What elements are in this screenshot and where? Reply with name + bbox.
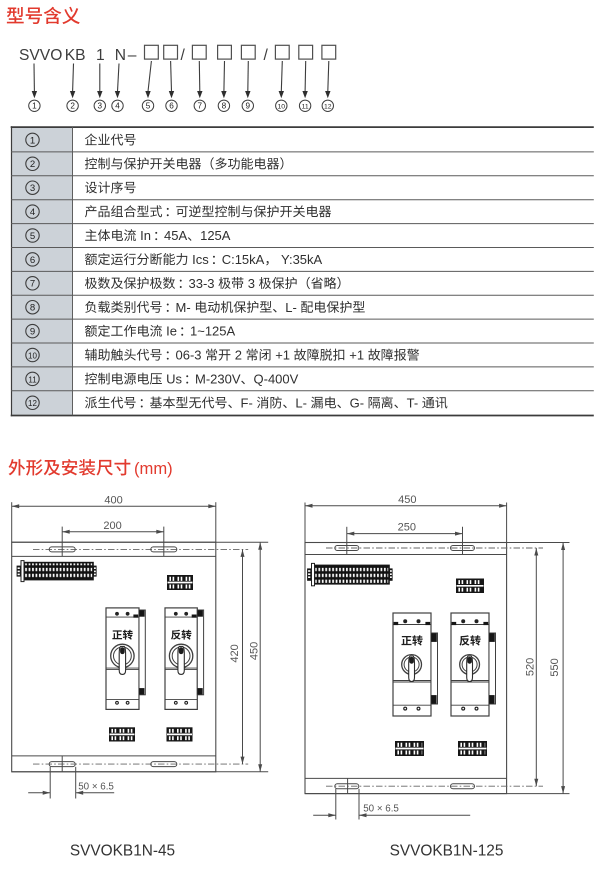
svg-text:N: N xyxy=(115,47,126,64)
svg-text:7: 7 xyxy=(198,102,203,111)
svg-text:/: / xyxy=(181,47,186,64)
svg-text:+1: +1 xyxy=(275,348,290,363)
svg-text:520: 520 xyxy=(525,658,537,676)
svg-text:L-: L- xyxy=(285,300,297,315)
svg-text:1: 1 xyxy=(30,135,35,146)
svg-text:C:15kA: C:15kA xyxy=(222,252,265,267)
svg-text:Ics: Ics xyxy=(192,252,209,267)
svg-text:200: 200 xyxy=(103,520,121,532)
svg-text:2: 2 xyxy=(30,159,35,170)
svg-text:2: 2 xyxy=(235,348,242,363)
svg-text:SVVOKB1N-125: SVVOKB1N-125 xyxy=(390,842,504,859)
svg-text:125A: 125A xyxy=(200,228,231,243)
svg-text:420: 420 xyxy=(229,644,241,662)
svg-text:33-3: 33-3 xyxy=(189,276,215,291)
svg-text:3: 3 xyxy=(98,102,103,111)
svg-text:4: 4 xyxy=(115,102,120,111)
svg-text:06-3: 06-3 xyxy=(176,348,202,363)
svg-text:Y:35kA: Y:35kA xyxy=(281,252,323,267)
svg-text:50 × 6.5: 50 × 6.5 xyxy=(78,781,114,792)
svg-text:45A: 45A xyxy=(164,228,187,243)
svg-text:T-: T- xyxy=(407,395,419,410)
svg-text:5: 5 xyxy=(146,102,151,111)
svg-text:12: 12 xyxy=(324,104,332,111)
svg-text:9: 9 xyxy=(246,102,251,111)
svg-text:10: 10 xyxy=(278,104,286,111)
svg-text:(mm): (mm) xyxy=(134,459,173,478)
svg-text:10: 10 xyxy=(28,351,37,360)
svg-text:12: 12 xyxy=(28,399,37,408)
svg-text:7: 7 xyxy=(30,279,35,290)
svg-text:M-: M- xyxy=(176,300,191,315)
svg-text:/: / xyxy=(264,47,269,64)
svg-text:50 × 6.5: 50 × 6.5 xyxy=(363,804,399,815)
svg-text:1~125A: 1~125A xyxy=(190,324,236,339)
svg-text:450: 450 xyxy=(398,494,416,506)
svg-text:In: In xyxy=(140,228,151,243)
svg-text:250: 250 xyxy=(398,521,416,533)
svg-text:5: 5 xyxy=(30,231,35,242)
svg-text:KB: KB xyxy=(65,47,86,64)
svg-text:1: 1 xyxy=(32,102,37,111)
svg-text:Ie: Ie xyxy=(166,324,177,339)
svg-text:L-: L- xyxy=(295,395,307,410)
svg-text:400: 400 xyxy=(104,494,122,506)
svg-text:1: 1 xyxy=(96,47,105,64)
svg-text:11: 11 xyxy=(28,375,37,384)
svg-text:Us: Us xyxy=(166,372,182,387)
svg-text:–: – xyxy=(128,47,137,64)
svg-text:+1: +1 xyxy=(349,348,364,363)
svg-text:SVVOKB1N-45: SVVOKB1N-45 xyxy=(70,842,175,859)
svg-text:6: 6 xyxy=(169,102,174,111)
svg-text:3: 3 xyxy=(30,183,35,194)
svg-text:3: 3 xyxy=(248,276,255,291)
svg-text:G-: G- xyxy=(350,395,364,410)
svg-text:4: 4 xyxy=(30,207,36,218)
svg-text:11: 11 xyxy=(302,104,309,111)
svg-text:8: 8 xyxy=(222,102,227,111)
svg-text:F-: F- xyxy=(241,395,253,410)
svg-text:6: 6 xyxy=(30,255,35,266)
svg-text:SVVO: SVVO xyxy=(19,47,62,64)
svg-text:550: 550 xyxy=(549,658,561,676)
svg-text:450: 450 xyxy=(249,642,261,660)
svg-text:2: 2 xyxy=(70,102,75,111)
svg-text:9: 9 xyxy=(30,327,35,338)
svg-text:M-230V: M-230V xyxy=(195,372,241,387)
svg-text:8: 8 xyxy=(30,303,35,314)
svg-text:Q-400V: Q-400V xyxy=(254,372,299,387)
